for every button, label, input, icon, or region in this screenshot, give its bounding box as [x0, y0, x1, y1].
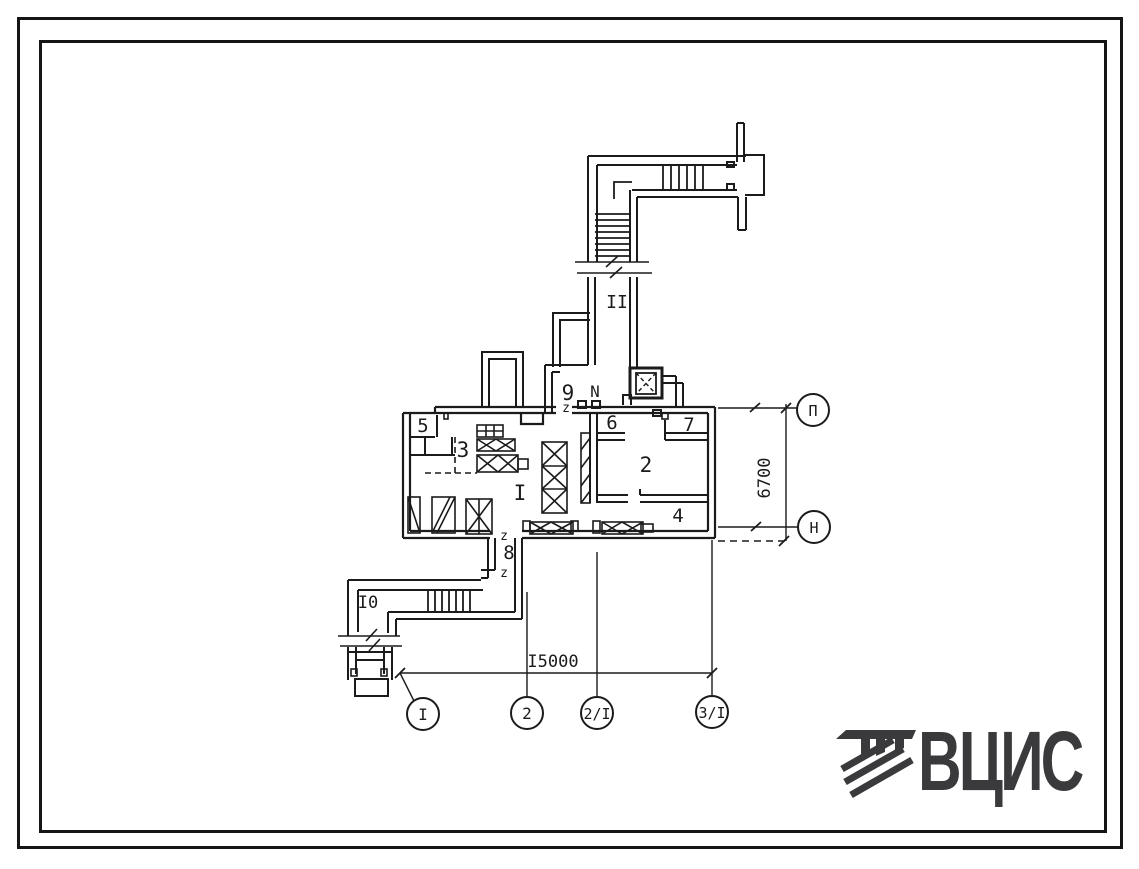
room-label-6: 6 — [606, 412, 617, 434]
axis-marker-2: 2 — [511, 697, 543, 729]
room-label-5: 5 — [417, 415, 428, 437]
hall-label-n: N — [590, 382, 600, 401]
room-label-11: II — [606, 292, 628, 313]
room-label-2: 2 — [640, 453, 653, 477]
drawing-sheet: II 9 N z — [0, 0, 1139, 869]
gallery-lower-leg-walls — [588, 277, 637, 368]
room-label-4: 4 — [672, 505, 683, 527]
axis-marker-n: Н — [798, 511, 830, 543]
axis-label-i: I — [418, 705, 428, 724]
axis-marker-i: I — [407, 698, 439, 730]
logo-text: ВЦИС — [918, 718, 1081, 804]
dimension-value-6700: 6700 — [755, 458, 775, 499]
elevator-shaft — [630, 368, 662, 398]
door-mark-z-top: z — [500, 529, 508, 544]
axis-label-n: Н — [809, 519, 818, 537]
room-label-8: 8 — [503, 542, 514, 564]
axis-label-2: 2 — [522, 704, 532, 723]
room-label-10: I0 — [358, 593, 378, 613]
axis-marker-2-1: 2/I — [581, 697, 613, 729]
break-line-upper — [575, 256, 652, 278]
dimension-value-15000: I5000 — [527, 652, 578, 672]
axis-label-p: П — [808, 402, 817, 420]
room-label-7: 7 — [683, 414, 694, 436]
door-mark-z-hall: z — [562, 401, 570, 416]
furniture-hatches — [408, 425, 643, 534]
duct-hatch-strip — [581, 433, 590, 503]
bay-window-left — [482, 352, 523, 408]
dimension-bottom — [395, 540, 717, 701]
axis-label-3-1: 3/I — [698, 704, 725, 722]
axis-marker-p: П — [797, 394, 829, 426]
door-mark-z-bottom: z — [500, 566, 508, 581]
entrance-porch-lower — [348, 647, 392, 696]
room-label-1: I — [514, 481, 527, 505]
upper-gallery-stairs — [595, 165, 703, 256]
corridor-10-stairs — [428, 590, 470, 612]
organization-logo: ВЦИС — [830, 720, 1090, 810]
axis-marker-3-1: 3/I — [696, 696, 728, 728]
axis-label-2-1: 2/I — [583, 705, 610, 723]
logo-mark-icon — [830, 722, 920, 802]
room-label-3: 3 — [457, 438, 470, 462]
